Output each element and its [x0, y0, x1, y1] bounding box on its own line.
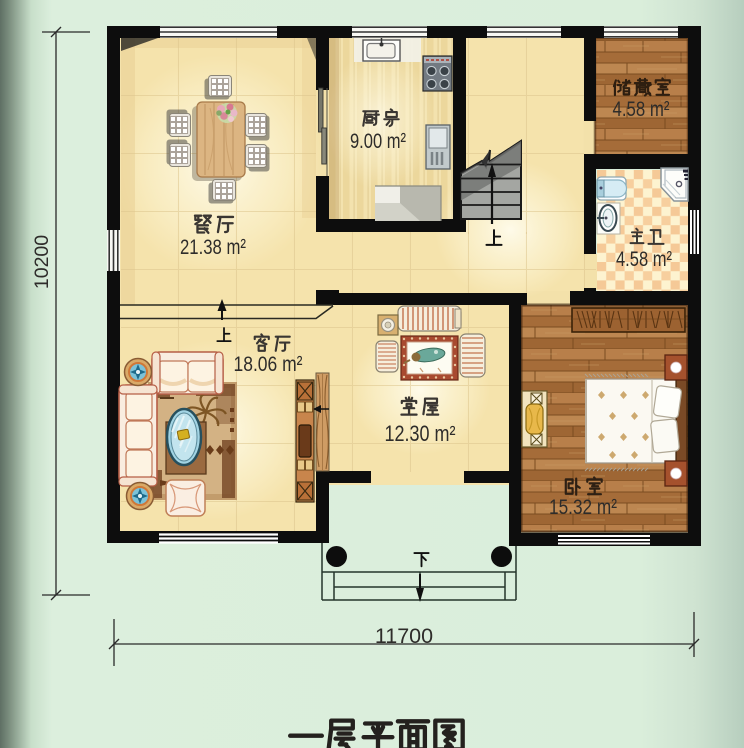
- svg-text:9.00 m²: 9.00 m²: [350, 129, 406, 153]
- svg-text:4.58 m²: 4.58 m²: [616, 248, 672, 271]
- svg-text:10200: 10200: [31, 235, 53, 289]
- svg-text:11700: 11700: [375, 624, 433, 648]
- svg-text:18.06 m²: 18.06 m²: [234, 352, 303, 376]
- svg-text:12.30 m²: 12.30 m²: [385, 421, 456, 446]
- svg-text:15.32 m²: 15.32 m²: [549, 495, 617, 519]
- svg-text:21.38 m²: 21.38 m²: [180, 235, 246, 259]
- svg-text:4.58 m²: 4.58 m²: [613, 98, 670, 121]
